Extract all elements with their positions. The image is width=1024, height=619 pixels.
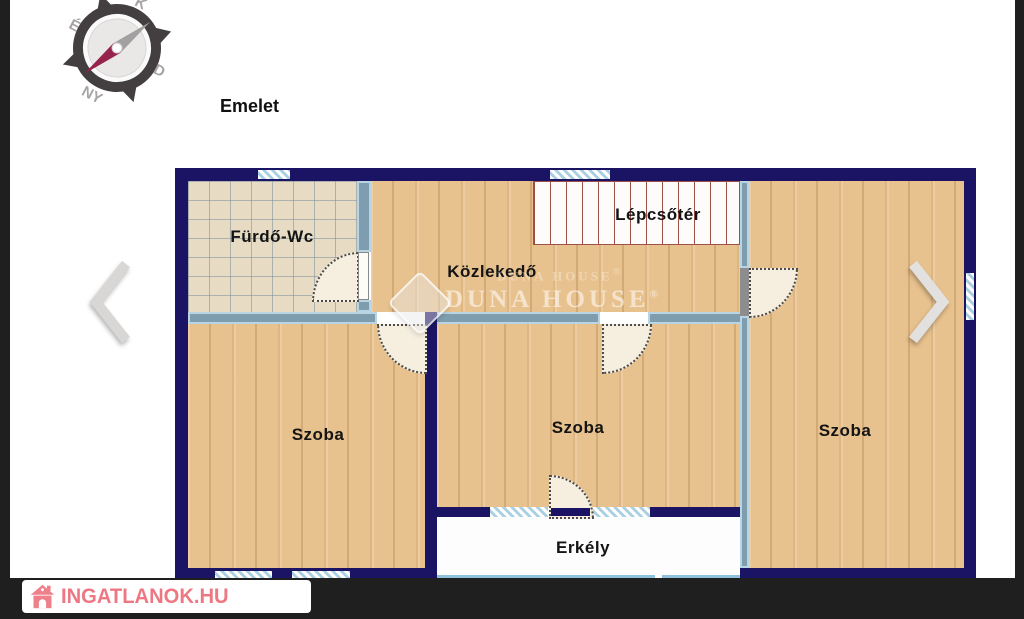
photo-viewer: K D NY É Emelet bbox=[0, 0, 1024, 619]
next-arrow-icon[interactable] bbox=[893, 256, 957, 348]
middle-room-floor bbox=[437, 324, 740, 507]
right-room-door-leaf bbox=[740, 268, 749, 316]
right-room-window bbox=[966, 273, 974, 320]
right-border-bar bbox=[1015, 0, 1024, 619]
bathroom-door-leaf bbox=[358, 252, 369, 300]
stairwell-window bbox=[550, 170, 610, 179]
room-label-furdo-wc: Fürdő-Wc bbox=[230, 227, 313, 247]
wall-divider-right-upper bbox=[740, 181, 749, 268]
watermark-registered-main: ® bbox=[650, 289, 662, 301]
wall-left bbox=[175, 168, 188, 582]
watermark-text-faint: DUNA HOUSE® bbox=[497, 266, 624, 284]
site-logo: INGATLANOK.HU bbox=[22, 580, 311, 613]
bathroom-window bbox=[258, 170, 290, 179]
room-label-erkely: Erkély bbox=[556, 538, 610, 558]
watermark-registered-faint: ® bbox=[613, 266, 624, 278]
compass-icon: K D NY É bbox=[55, 0, 179, 114]
watermark-text-main: DUNA HOUSE® bbox=[445, 286, 662, 314]
house-icon bbox=[29, 583, 56, 610]
wall-balcony-b bbox=[650, 507, 740, 517]
wall-hallway-a bbox=[188, 312, 377, 324]
watermark-main-label: DUNA HOUSE bbox=[445, 286, 650, 313]
room-label-szoba-left: Szoba bbox=[292, 425, 345, 445]
wall-divider-right-lower bbox=[740, 316, 749, 568]
balcony-window-1 bbox=[490, 507, 548, 517]
prev-arrow-icon[interactable] bbox=[82, 256, 146, 348]
wall-bathroom-upper bbox=[357, 181, 371, 252]
balcony-door-leaf bbox=[551, 508, 590, 516]
wall-balcony-a bbox=[437, 507, 490, 517]
room-label-lepcsoter: Lépcsőtér bbox=[615, 205, 701, 225]
floor-plan: Fürdő-Wc Közlekedő Lépcsőtér Szoba Szoba… bbox=[175, 168, 976, 586]
wall-right bbox=[964, 168, 976, 582]
page-title: Emelet bbox=[220, 96, 279, 117]
room-label-szoba-right: Szoba bbox=[819, 421, 872, 441]
left-room-floor bbox=[188, 324, 425, 570]
wall-bathroom-lower bbox=[357, 300, 371, 312]
room-label-szoba-middle: Szoba bbox=[552, 418, 605, 438]
wall-hallway-c bbox=[648, 312, 745, 324]
site-logo-text: INGATLANOK.HU bbox=[61, 585, 229, 609]
left-border-bar bbox=[0, 0, 10, 619]
watermark-faint-label: DUNA HOUSE bbox=[497, 268, 613, 283]
balcony-window-2 bbox=[593, 507, 650, 517]
right-room-floor bbox=[749, 181, 964, 570]
